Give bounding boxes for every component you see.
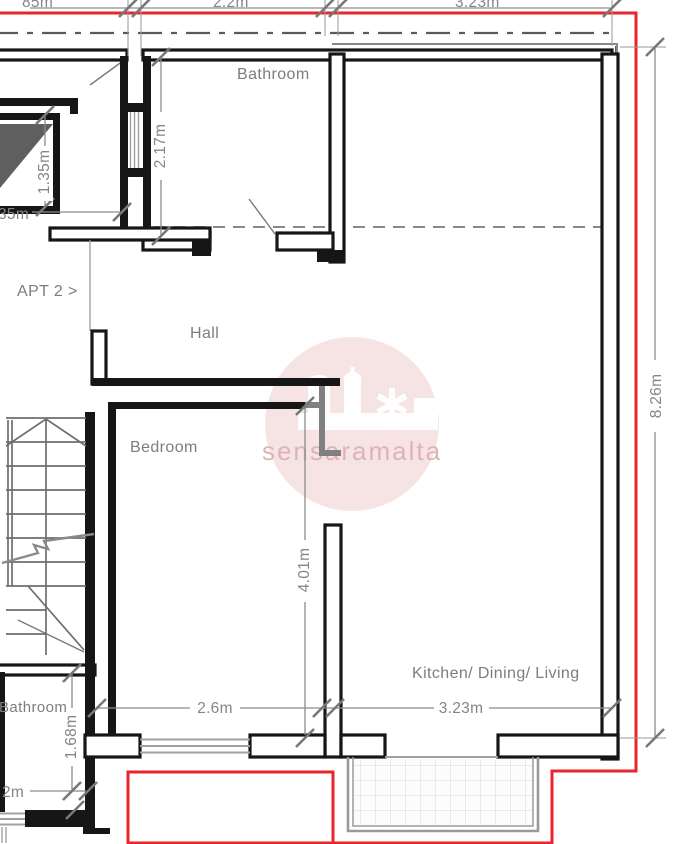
dim-bathroom2-depth: 1.68m bbox=[63, 715, 80, 760]
dim-bathroom-depth: 2.17m bbox=[152, 124, 169, 169]
dim-top-width-left: 2.2m bbox=[213, 0, 249, 11]
watermark-text: sensaramalta bbox=[262, 436, 442, 466]
dim-shaft-width-partial: 35m bbox=[0, 206, 29, 223]
room-label-bathroom-top: Bathroom bbox=[237, 66, 310, 83]
dim-top-width-right: 3.23m bbox=[455, 0, 500, 11]
floor-plan-drawing: sensaramalta bbox=[0, 0, 699, 844]
dim-kitchen-width: 3.23m bbox=[439, 700, 484, 717]
dim-shaft-height: 1.35m bbox=[36, 150, 53, 195]
room-label-hall: Hall bbox=[190, 325, 219, 342]
dim-bedroom-depth: 4.01m bbox=[296, 548, 313, 593]
floor-plan-canvas: sensaramalta bbox=[0, 0, 699, 844]
dim-bedroom-width: 2.6m bbox=[197, 700, 233, 717]
room-label-kitchen: Kitchen/ Dining/ Living bbox=[412, 665, 580, 682]
dim-right-height: 8.26m bbox=[648, 374, 665, 419]
room-label-bedroom: Bedroom bbox=[130, 439, 198, 456]
dim-top-left-partial: 85m bbox=[22, 0, 53, 11]
balcony-terrace bbox=[348, 757, 538, 831]
apartment-2-label: APT 2 > bbox=[17, 283, 78, 300]
room-label-bathroom-bottom: Bathroom bbox=[0, 699, 67, 716]
staircase bbox=[2, 418, 94, 655]
dim-bathroom2-width-partial: 2m bbox=[2, 784, 24, 801]
watermark: sensaramalta bbox=[262, 337, 442, 511]
